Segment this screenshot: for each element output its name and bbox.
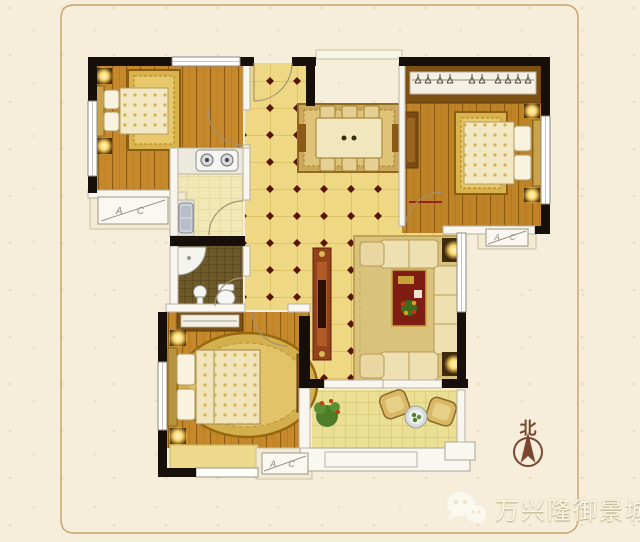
ac-label: A C: [493, 233, 519, 242]
entry-ledge: [316, 50, 402, 59]
floor-plan-page: A C A C A C 北: [0, 0, 640, 542]
dining-chair: [342, 158, 357, 171]
ac-unit-right: A C: [486, 229, 528, 246]
bay-window-seat: [170, 445, 258, 471]
ac-unit-bottom: A C: [262, 453, 308, 474]
pillow: [104, 112, 119, 131]
dining-chair: [320, 158, 335, 171]
bed-headboard: [533, 120, 541, 186]
lamp-glow: [95, 137, 113, 155]
watermark: 万兴隆御景城: [444, 489, 640, 527]
lamp-glow: [523, 102, 541, 120]
floor-plan: A C A C A C 北: [0, 0, 640, 542]
tv: [318, 280, 326, 328]
pillow: [514, 155, 531, 180]
dining-chair: [364, 106, 379, 119]
bed-headboard: [168, 348, 177, 426]
pillow: [514, 126, 531, 151]
bay-window-outer: [196, 468, 258, 477]
watermark-text: 万兴隆御景城: [495, 491, 640, 526]
lamp-glow: [168, 328, 188, 348]
dining-chair: [364, 158, 379, 171]
dining-set: [298, 104, 400, 172]
ac-label: A C: [115, 206, 150, 217]
dining-chair: [320, 106, 335, 119]
balcony-step-right: [445, 442, 475, 460]
armchair: [360, 354, 384, 378]
pillow: [177, 389, 195, 420]
pillow: [104, 90, 119, 109]
wechat-icon: [444, 490, 488, 526]
armchair: [360, 242, 384, 266]
lamp-glow: [95, 67, 113, 85]
lamp-glow: [523, 186, 541, 204]
lamp-glow: [168, 426, 188, 446]
ac-unit-left: A C: [98, 197, 168, 224]
north-compass-icon: 北: [514, 419, 542, 466]
dining-table: [316, 118, 382, 158]
pillow: [177, 354, 195, 385]
dining-chair: [342, 106, 357, 119]
ac-label: A C: [269, 459, 300, 469]
